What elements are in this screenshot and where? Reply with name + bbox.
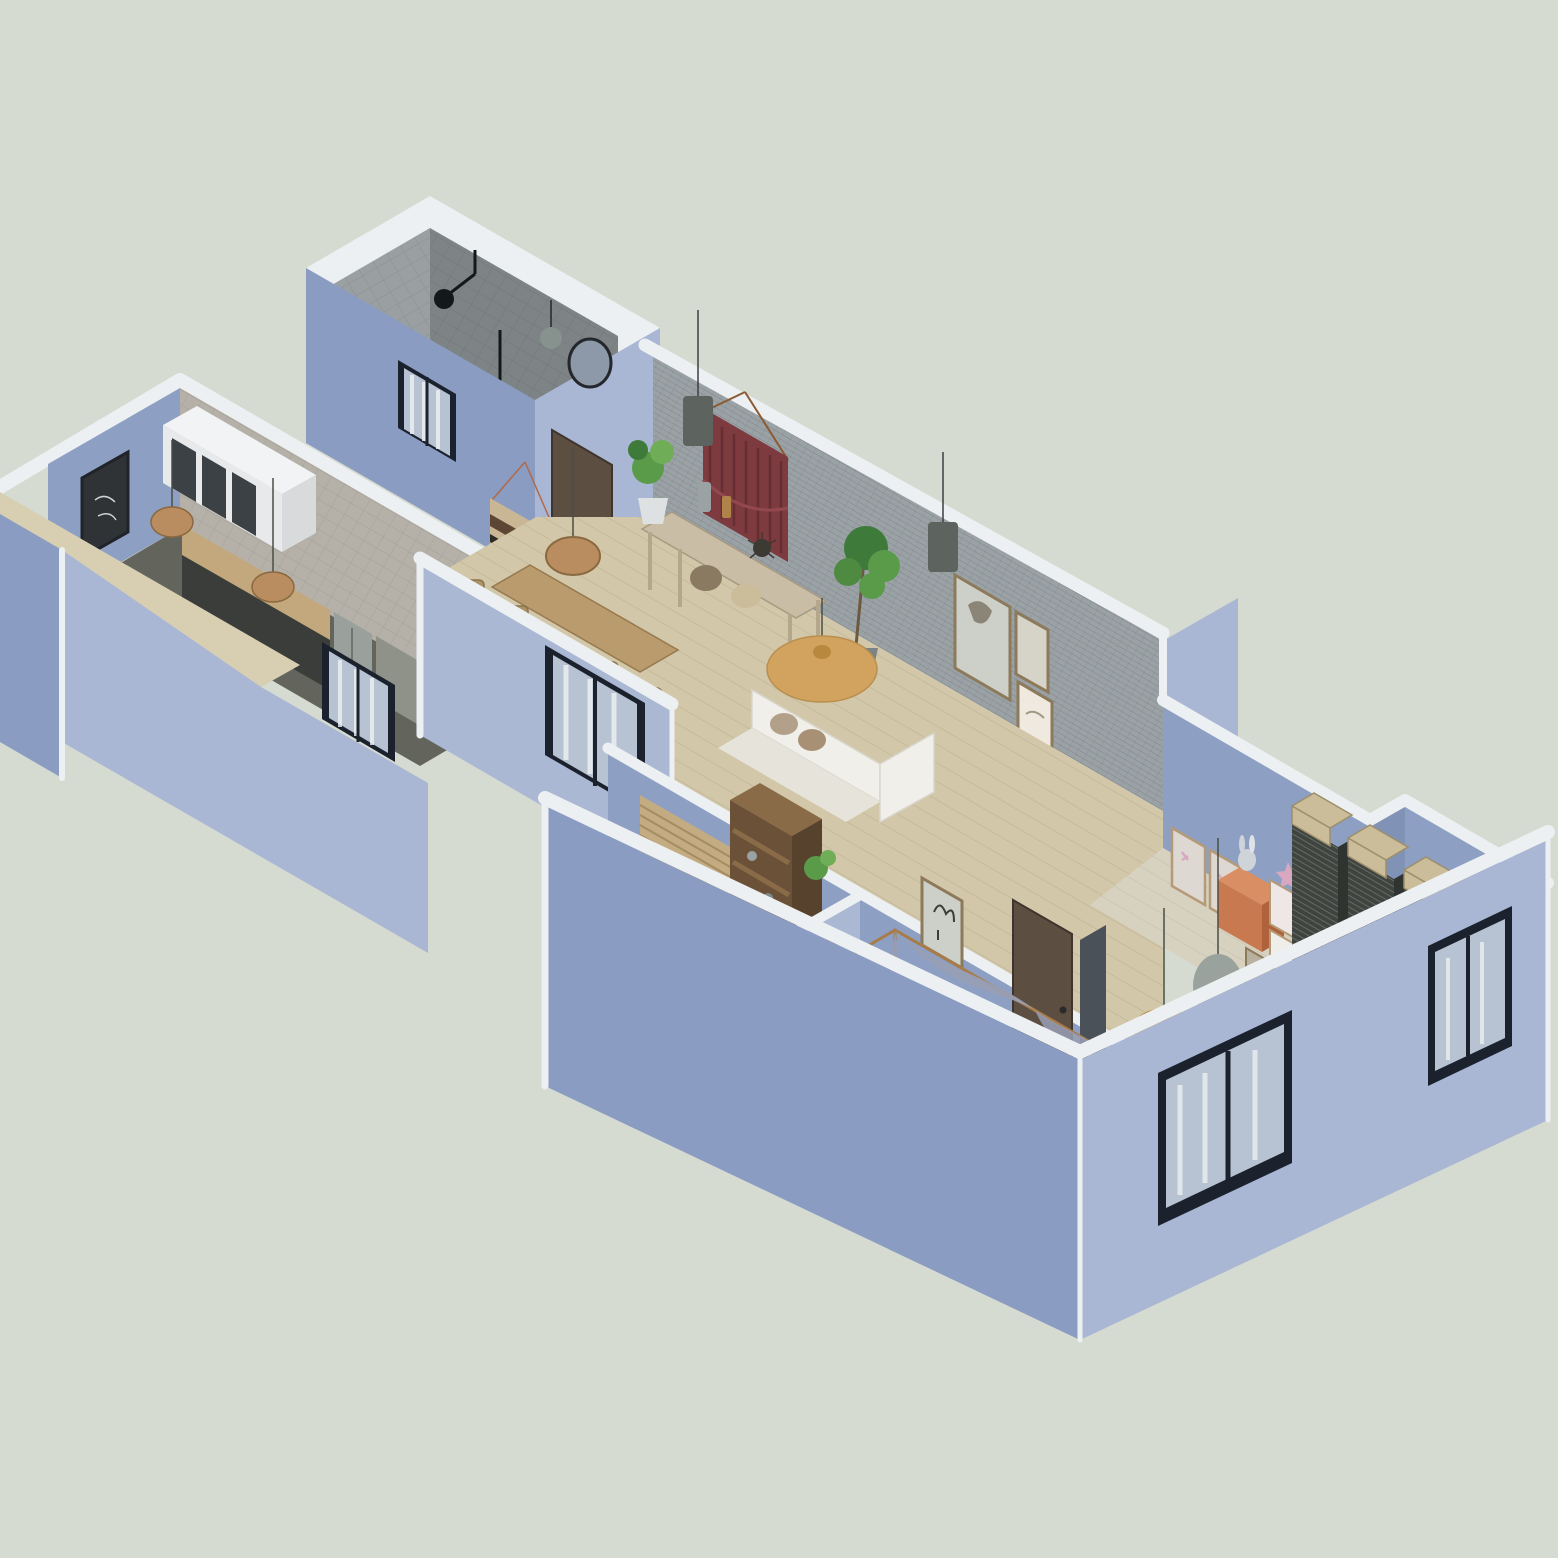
rattan-dome-pendant: [546, 537, 600, 575]
pillow: [770, 713, 798, 735]
kitchen-exterior-corner-wall: [0, 514, 62, 778]
floorplan-canvas: [0, 0, 1558, 1558]
isometric-floorplan-render: [0, 0, 1558, 1558]
bottle: [722, 496, 731, 518]
floor-pot: [690, 565, 722, 591]
vase: [698, 482, 711, 512]
round-mirror: [569, 339, 611, 387]
floor-basket: [731, 584, 761, 608]
pillow: [798, 729, 826, 751]
